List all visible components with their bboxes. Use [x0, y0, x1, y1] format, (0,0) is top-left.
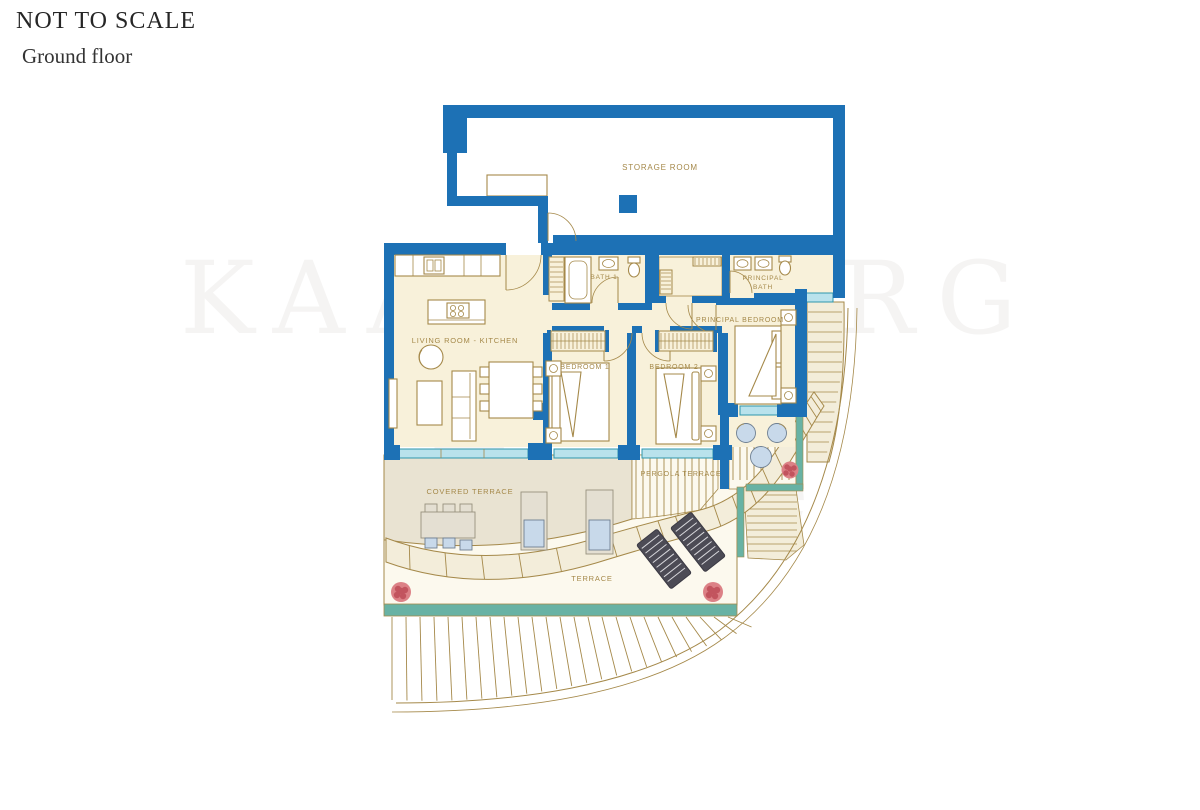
bath1-sink: [599, 257, 618, 270]
plant: [391, 582, 411, 602]
principal-bath-label-1: PRINCIPAL: [742, 275, 783, 282]
outdoor-dining-table: [421, 512, 475, 538]
bedroom1-label: BEDROOM 1: [560, 364, 609, 371]
bath1-label: BATH 1: [590, 274, 617, 281]
sofa: [452, 371, 476, 441]
dining-table: [489, 362, 533, 418]
storage-pillar: [619, 195, 637, 213]
bedroom1-window: [554, 449, 618, 458]
coffee-table: [417, 381, 442, 425]
principal-bath-sink-2: [755, 257, 772, 270]
hall-closet: [549, 257, 564, 301]
steps-glass-rail: [737, 487, 744, 557]
principal-bath-label-2: BATH: [753, 284, 773, 291]
plant: [782, 462, 799, 479]
terrace-label: TERRACE: [571, 574, 612, 583]
covered-terrace-label: COVERED TERRACE: [427, 487, 514, 496]
bedroom2-label: BEDROOM 2: [649, 364, 698, 371]
bistro-glass-rail-bottom: [746, 484, 803, 491]
storage-room: STORAGE ROOM: [443, 105, 845, 255]
terrace-edge-band: [384, 604, 737, 616]
storage-niche: [487, 175, 547, 196]
storage-label: STORAGE ROOM: [622, 163, 698, 172]
principal-bedroom-label: PRINCIPAL BEDROOM: [696, 317, 784, 324]
bedroom1-furniture: [546, 330, 609, 443]
principal-bath-toilet: [780, 261, 791, 275]
plant: [703, 582, 723, 602]
living-kitchen-label: LIVING ROOM - KITCHEN: [412, 336, 518, 345]
bistro-glass-rail-right: [796, 415, 803, 489]
living-sliding-door: [398, 449, 528, 458]
pergola-terrace-label: PERGOLA TERRACE: [641, 471, 722, 478]
tv-console: [389, 379, 397, 428]
stove: [447, 303, 469, 318]
floor-plan: STORAGE ROOM: [0, 0, 1200, 810]
principal-bath-sink-1: [734, 257, 751, 270]
bistro-table: [751, 447, 772, 468]
bedroom2-window: [642, 449, 713, 458]
bath1-toilet: [629, 263, 640, 277]
page: NOT TO SCALE Ground floor KAARSBERG Esta…: [0, 0, 1200, 810]
